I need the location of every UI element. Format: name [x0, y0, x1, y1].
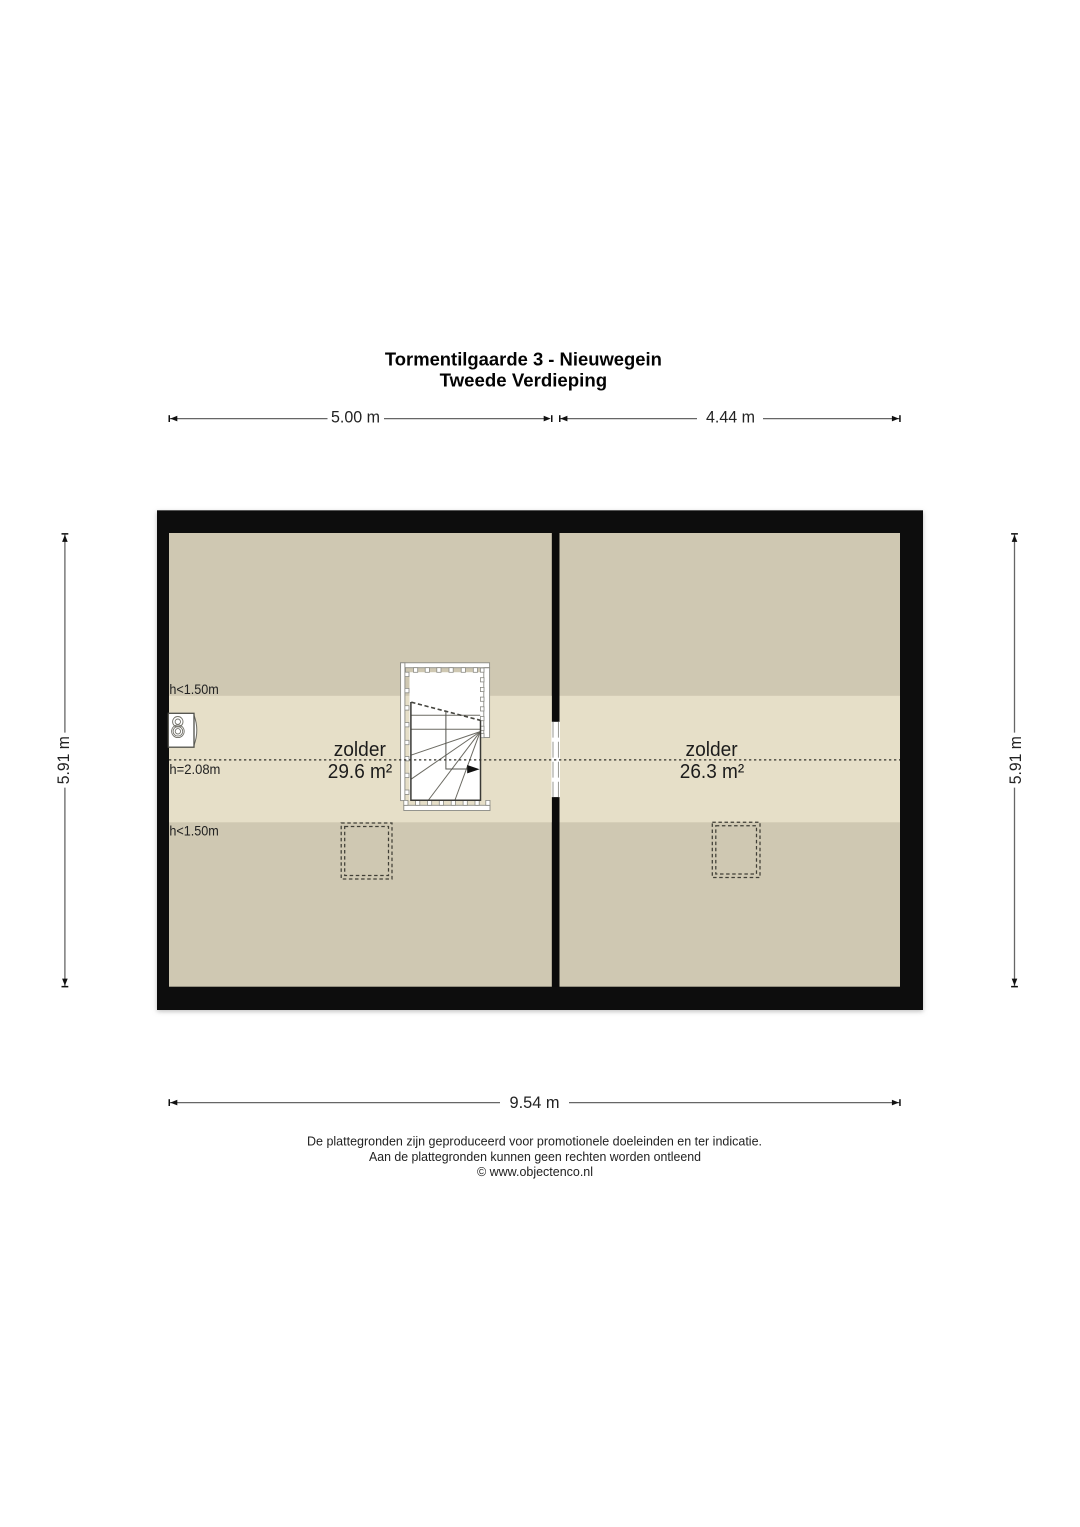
svg-text:h<1.50m: h<1.50m	[169, 823, 218, 839]
svg-text:De plattegronden zijn geproduc: De plattegronden zijn geproduceerd voor …	[307, 1133, 762, 1148]
svg-text:29.6 m²: 29.6 m²	[328, 761, 393, 783]
svg-text:5.91 m: 5.91 m	[55, 736, 73, 784]
svg-text:5.91 m: 5.91 m	[1007, 736, 1025, 784]
svg-text:h<1.50m: h<1.50m	[169, 681, 218, 697]
svg-text:9.54 m: 9.54 m	[510, 1094, 560, 1112]
svg-text:Tweede Verdieping: Tweede Verdieping	[440, 369, 608, 390]
svg-text:26.3 m²: 26.3 m²	[680, 761, 745, 783]
svg-text:Tormentilgaarde 3 - Nieuwegein: Tormentilgaarde 3 - Nieuwegein	[385, 349, 662, 370]
svg-text:4.44 m: 4.44 m	[706, 408, 755, 426]
svg-text:zolder: zolder	[686, 739, 738, 761]
svg-text:Aan de plattegronden kunnen ge: Aan de plattegronden kunnen geen rechten…	[369, 1149, 701, 1164]
svg-text:h=2.08m: h=2.08m	[169, 761, 220, 777]
svg-text:© www.objectenco.nl: © www.objectenco.nl	[477, 1164, 593, 1179]
svg-text:zolder: zolder	[334, 739, 386, 761]
svg-text:5.00 m: 5.00 m	[331, 408, 380, 426]
